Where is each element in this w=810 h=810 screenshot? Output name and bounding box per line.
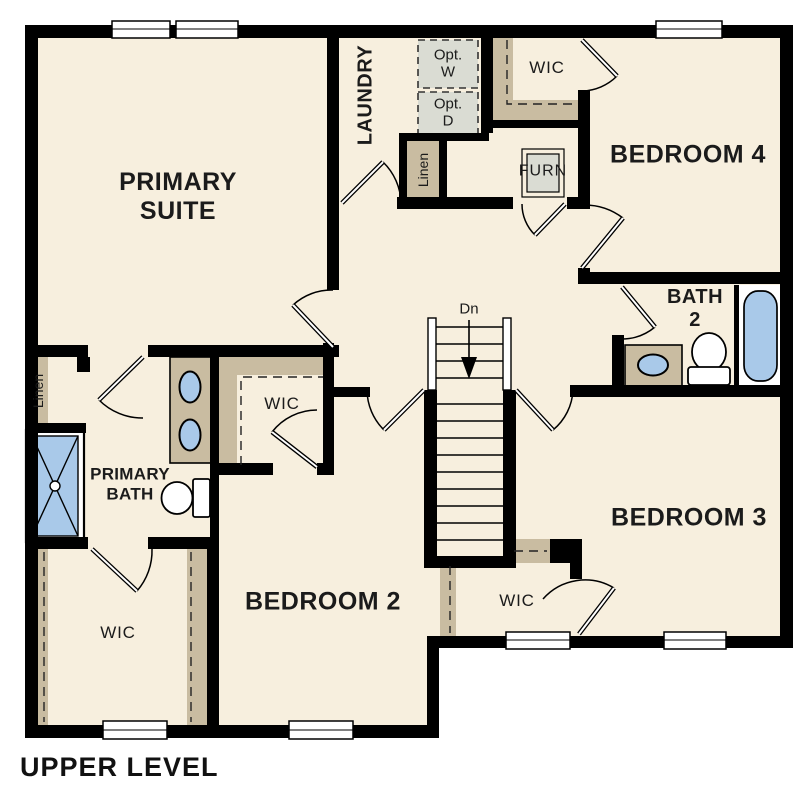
bathtub [734, 285, 780, 385]
primary-toilet [162, 479, 211, 517]
bath2-vanity-sink [625, 345, 682, 386]
floor-plan: PRIMARY SUITE LAUNDRY Opt. W Opt. D Line… [0, 0, 810, 810]
floor-plan-drawing [0, 0, 810, 810]
bath2-toilet [688, 333, 730, 385]
plan-title: UPPER LEVEL [20, 752, 219, 783]
opt-dryer-box [418, 92, 478, 138]
primary-vanity-sinks [170, 357, 211, 463]
opt-washer-box [418, 40, 478, 88]
